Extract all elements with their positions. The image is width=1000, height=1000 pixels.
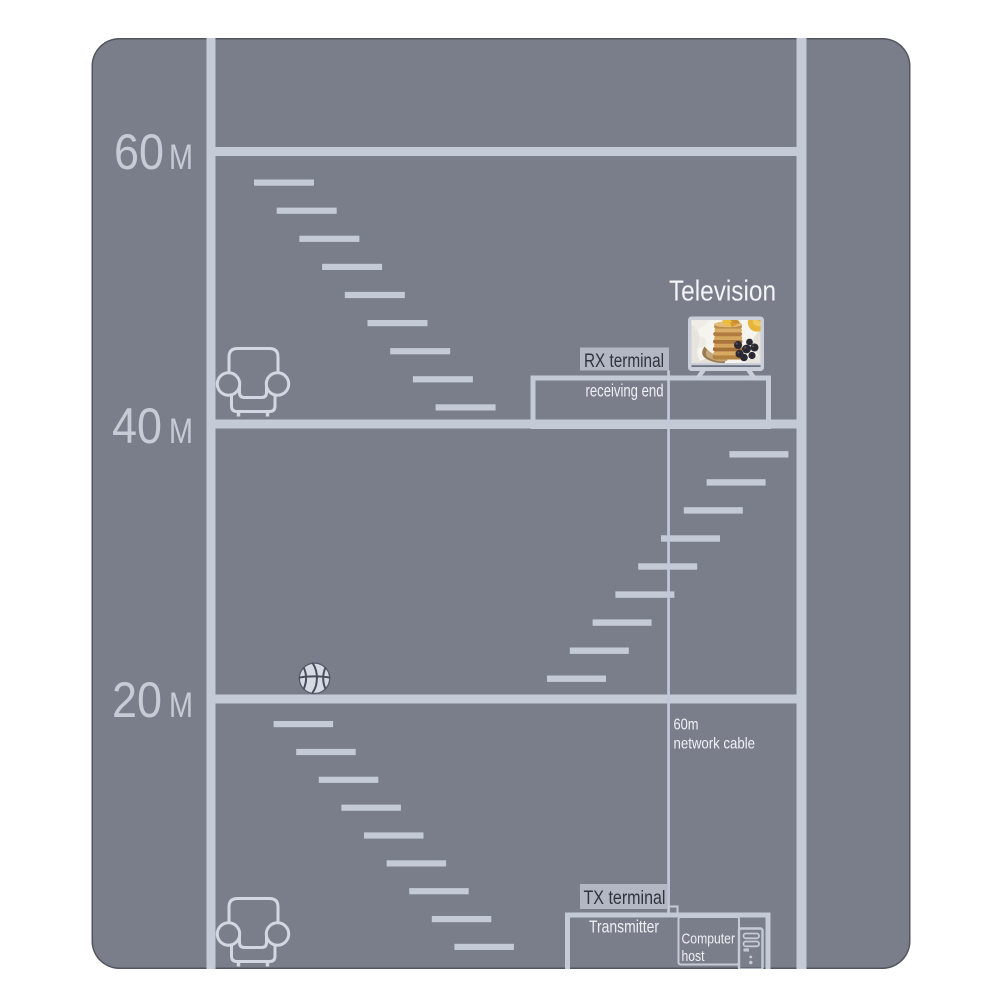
svg-text:M: M (169, 412, 193, 451)
svg-text:Transmitter: Transmitter (589, 917, 659, 937)
svg-text:receiving end: receiving end (586, 381, 664, 401)
svg-text:Computer: Computer (682, 931, 736, 948)
svg-text:20: 20 (112, 672, 162, 728)
svg-text:M: M (169, 686, 193, 725)
svg-text:M: M (169, 138, 193, 177)
svg-text:40: 40 (112, 398, 162, 454)
svg-text:host: host (682, 948, 706, 965)
svg-text:TX terminal: TX terminal (584, 887, 666, 909)
svg-text:RX terminal: RX terminal (584, 351, 664, 372)
svg-text:network cable: network cable (674, 736, 756, 753)
svg-text:60m: 60m (674, 716, 699, 733)
svg-text:60: 60 (114, 124, 164, 180)
svg-text:Television: Television (669, 276, 776, 308)
